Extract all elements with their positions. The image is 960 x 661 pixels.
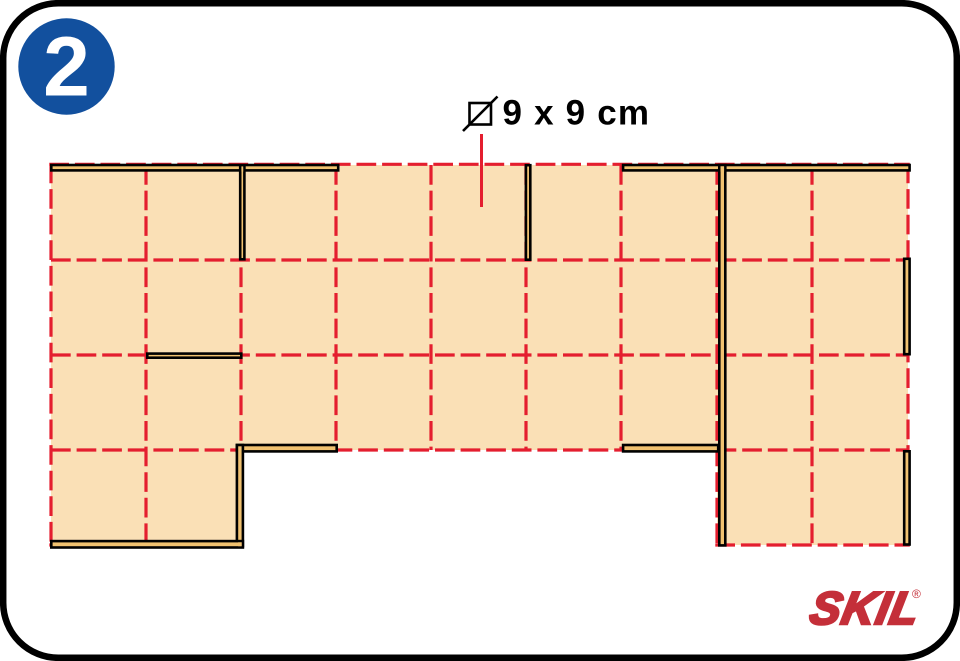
svg-text:®: ® <box>912 587 921 601</box>
svg-text:SKIL: SKIL <box>806 582 925 634</box>
svg-text:9 x 9 cm: 9 x 9 cm <box>503 94 651 133</box>
svg-text:2: 2 <box>43 20 90 114</box>
